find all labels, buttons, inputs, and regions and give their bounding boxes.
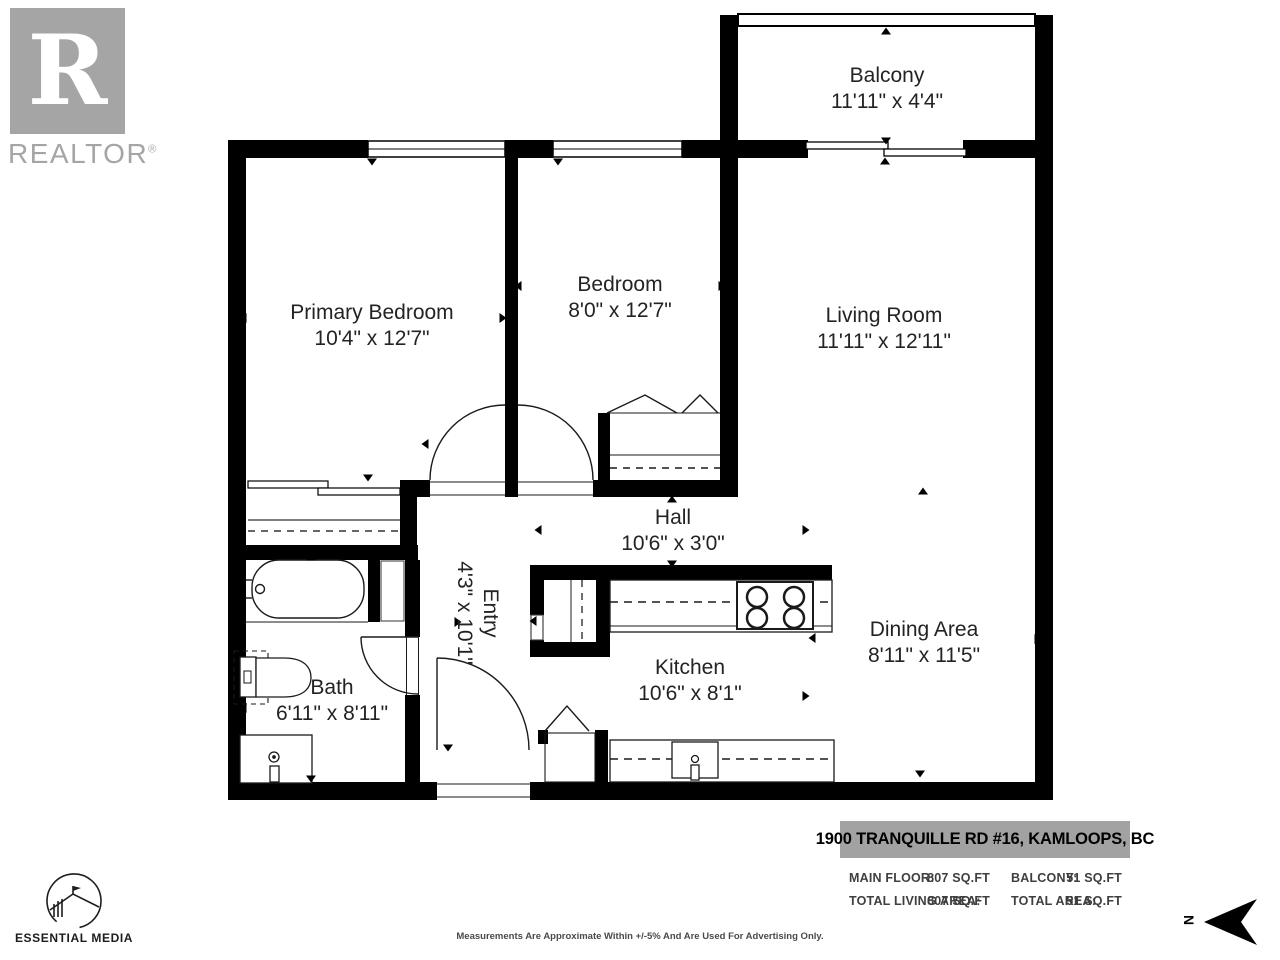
room-name: Bedroom [568, 272, 672, 298]
room-label-hall: Hall 10'6" x 3'0" [621, 505, 725, 557]
room-label-primary-bedroom: Primary Bedroom 10'4" x 12'7" [290, 300, 453, 352]
room-dims: 11'11" x 12'11" [817, 329, 951, 355]
room-label-bath: Bath 6'11" x 8'11" [276, 675, 388, 727]
room-label-bedroom: Bedroom 8'0" x 12'7" [568, 272, 672, 324]
entry-door [437, 658, 529, 750]
stat-value-total-area: 51 SQ.FT [1042, 894, 1122, 908]
kitchen-sink-icon [672, 742, 718, 780]
room-name: Bath [276, 675, 388, 701]
room-name: Hall [621, 505, 725, 531]
room-dims: 6'11" x 8'11" [276, 701, 388, 727]
floor-plan-drawing [0, 0, 1280, 960]
stat-value-main-floor: 807 SQ.FT [910, 871, 990, 885]
room-name: Entry [477, 561, 503, 665]
stat-value-total-living-area: 807 SQ.FT [910, 894, 990, 908]
north-label: N [1181, 915, 1197, 925]
room-name: Dining Area [868, 617, 980, 643]
bifold-door [682, 395, 718, 413]
primary-closet [248, 481, 400, 531]
room-dims: 10'4" x 12'7" [290, 326, 453, 352]
media-logo-text: ESSENTIAL MEDIA [4, 931, 144, 945]
room-name: Primary Bedroom [290, 300, 453, 326]
media-logo-icon [36, 863, 112, 939]
stat-value-balcony: 51 SQ.FT [1042, 871, 1122, 885]
room-dims: 8'0" x 12'7" [568, 298, 672, 324]
room-dims: 10'6" x 3'0" [621, 531, 725, 557]
room-dims: 4'3" x 10'1" [451, 561, 477, 665]
realtor-logo: R [10, 8, 125, 134]
realtor-wordmark: REALTOR® [8, 138, 158, 170]
balcony-railing [738, 14, 1035, 26]
stove-icon [737, 582, 813, 629]
bifold-door [545, 706, 589, 731]
room-name: Balcony [831, 63, 943, 89]
room-label-balcony: Balcony 11'11" x 4'4" [831, 63, 943, 115]
room-dims: 10'6" x 8'1" [638, 681, 742, 707]
room-name: Kitchen [638, 655, 742, 681]
realtor-logo-letter: R [28, 23, 108, 119]
bath-linen-nook [381, 561, 404, 621]
floor-plan-page: Balcony 11'11" x 4'4" Primary Bedroom 10… [0, 0, 1280, 960]
room-label-entry: Entry 4'3" x 10'1" [451, 561, 503, 665]
bedroom-closet [607, 395, 720, 468]
primary-bedroom-door [430, 405, 505, 480]
north-arrow-icon [1204, 899, 1257, 945]
bath-vanity-icon [240, 735, 312, 783]
room-label-kitchen: Kitchen 10'6" x 8'1" [638, 655, 742, 707]
registered-mark: ® [148, 144, 158, 156]
disclaimer-text: Measurements Are Approximate Within +/-5… [340, 931, 940, 942]
bedroom-door [518, 405, 593, 480]
address-banner: 1900 TRANQUILLE RD #16, KAMLOOPS, BC [840, 821, 1130, 858]
kitchen-closet [545, 706, 595, 782]
bathtub-icon [246, 560, 368, 622]
room-name: Living Room [817, 303, 951, 329]
room-label-dining-area: Dining Area 8'11" x 11'5" [868, 617, 980, 669]
room-label-living-room: Living Room 11'11" x 12'11" [817, 303, 951, 355]
room-dims: 8'11" x 11'5" [868, 643, 980, 669]
bifold-door [607, 395, 677, 413]
room-dims: 11'11" x 4'4" [831, 89, 943, 115]
